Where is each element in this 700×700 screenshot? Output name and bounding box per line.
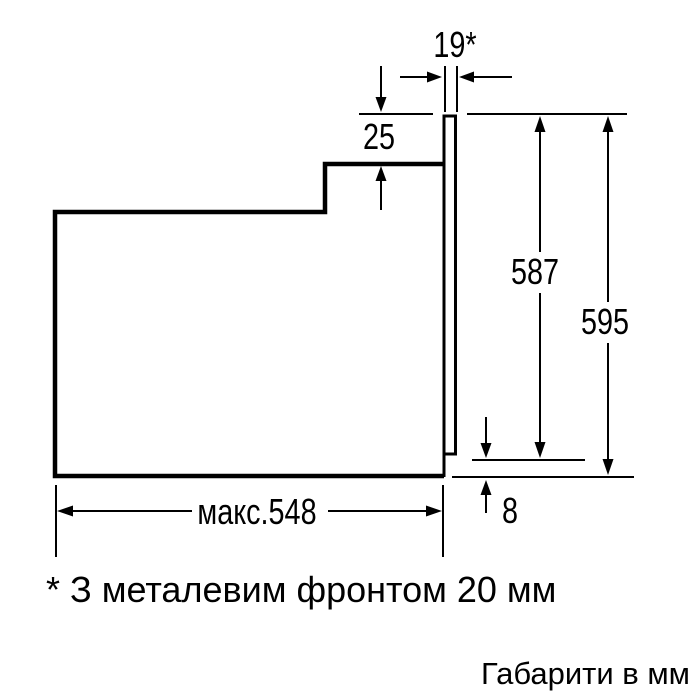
dim-label-bottom-offset: 8 <box>500 493 520 529</box>
installation-dimension-diagram: 19* 25 587 595 8 макс.548 * З металевим … <box>0 0 700 700</box>
arrow-19-right-icon <box>459 72 474 83</box>
units-caption: Габарити в мм <box>481 658 690 689</box>
arrow-587-down-icon <box>535 442 546 458</box>
oven-outline <box>55 116 456 477</box>
arrow-548-left-icon <box>57 506 73 517</box>
arrow-548-right-icon <box>426 506 442 517</box>
arrowheads <box>57 72 614 517</box>
arrow-25-up-icon <box>376 166 387 181</box>
footnote: * З металевим фронтом 20 мм <box>46 572 556 608</box>
dim-label-max-depth: макс.548 <box>183 494 332 530</box>
arrow-19-left-icon <box>427 72 442 83</box>
arrow-595-down-icon <box>603 459 614 475</box>
dimension-lines <box>56 66 634 557</box>
dim-label-front-thickness: 19* <box>428 27 482 63</box>
oven-body-outline <box>55 164 444 476</box>
arrow-587-up-icon <box>535 116 546 132</box>
dim-label-top-recess: 25 <box>359 119 399 155</box>
oven-front-panel <box>444 116 456 454</box>
arrow-25-down-icon <box>376 97 387 112</box>
arrow-595-up-icon <box>603 116 614 132</box>
arrow-8-up-icon <box>481 480 492 495</box>
arrow-8-down-icon <box>481 443 492 458</box>
dim-label-total-height: 595 <box>575 304 635 340</box>
dim-label-inner-height: 587 <box>505 254 565 290</box>
